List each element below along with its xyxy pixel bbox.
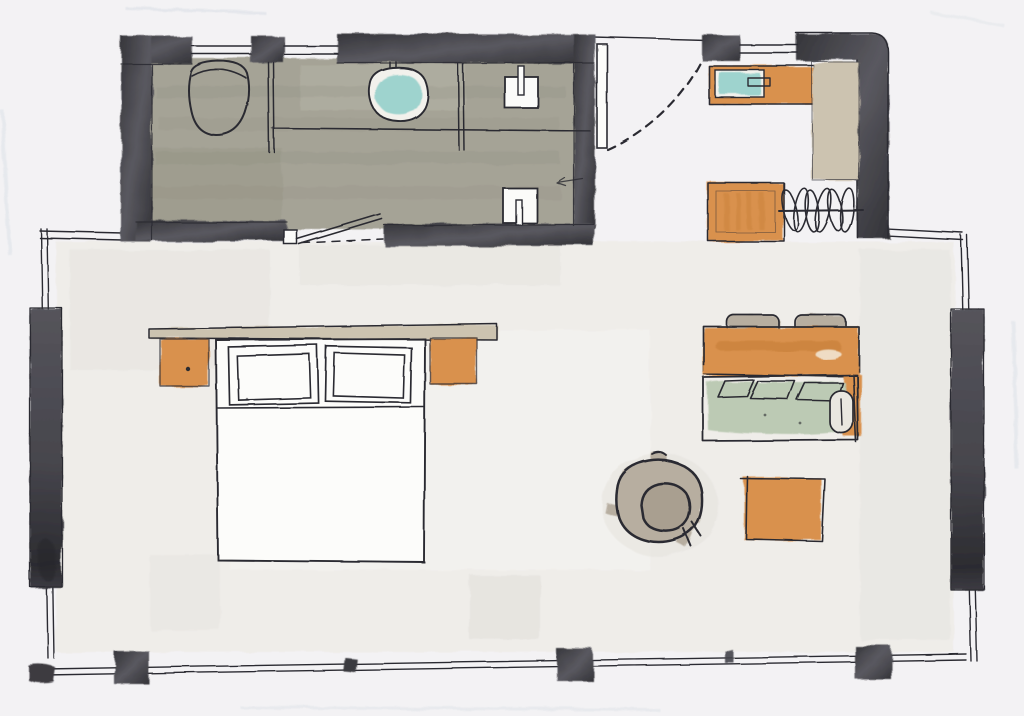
floor-plan-drawing (0, 0, 1024, 716)
window-panel-left (30, 308, 62, 587)
nightstand-left (160, 339, 209, 386)
side-table (740, 476, 825, 541)
knob (186, 367, 190, 371)
sofa-cushion (707, 381, 847, 435)
sofa (703, 374, 861, 442)
window-panel-right (951, 309, 984, 590)
entry-door-leaf (597, 44, 607, 148)
bathroom (121, 34, 595, 246)
dresser (708, 183, 784, 241)
console-table (704, 327, 860, 377)
door-hinge (284, 230, 297, 244)
floor-plan-canvas (0, 0, 1024, 716)
basin-water (376, 75, 421, 114)
post (855, 646, 891, 679)
double-bed (216, 339, 425, 562)
nightstand-right (430, 338, 477, 384)
joint-mark (344, 658, 358, 673)
sheet-fold (217, 407, 424, 408)
shower-valve-lower (503, 188, 537, 225)
pillow-left (228, 345, 318, 405)
corner-mark (29, 665, 56, 683)
room-floor-wash (56, 242, 954, 652)
pillow-right (325, 346, 411, 403)
post (557, 649, 593, 681)
post (114, 651, 149, 684)
joint-mark (725, 651, 734, 663)
minibar-sink (719, 73, 760, 94)
minibar-counter (709, 66, 815, 104)
tall-cabinet (812, 62, 859, 180)
